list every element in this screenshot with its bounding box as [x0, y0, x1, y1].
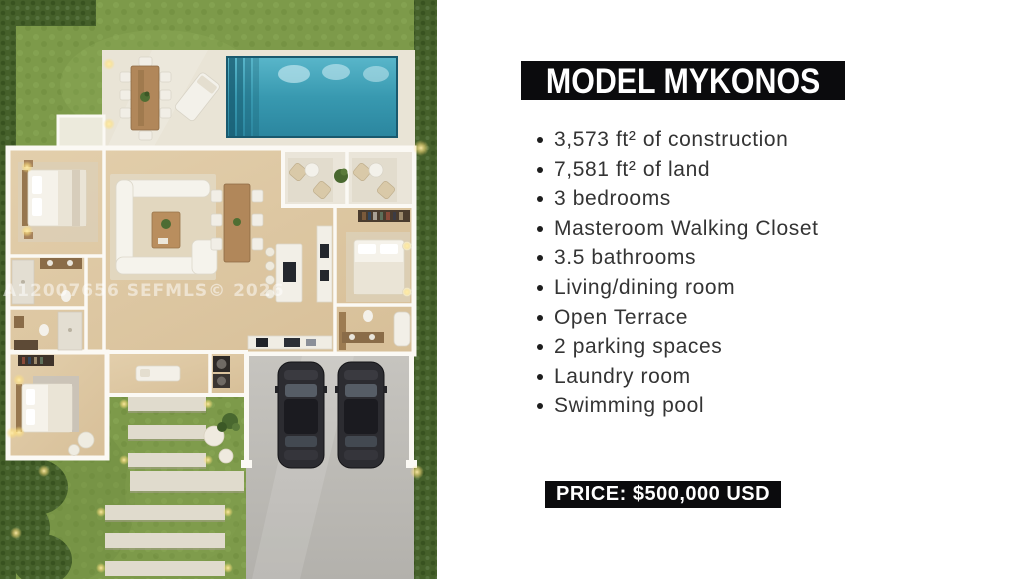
car-2 [335, 362, 387, 468]
swimming-pool [227, 57, 397, 137]
mls-watermark: A12007656 SEFMLS© 2026 [3, 281, 284, 301]
flyer: A12007656 SEFMLS© 2026 MODEL MYKONOS 3,5… [0, 0, 1024, 579]
floorplan-svg: A12007656 SEFMLS© 2026 [0, 0, 437, 579]
info-panel: MODEL MYKONOS 3,573 ft² of construction … [437, 0, 1024, 579]
price-banner: PRICE: $500,000 USD [545, 481, 781, 508]
car-1 [275, 362, 327, 468]
feature-walking-closet: Masteroom Walking Closet [536, 214, 819, 244]
laundry-units [213, 356, 230, 388]
feature-swimming-pool: Swimming pool [536, 391, 819, 421]
title-banner: MODEL MYKONOS [521, 61, 845, 100]
feature-living-dining: Living/dining room [536, 273, 819, 303]
model-title: MODEL MYKONOS [546, 60, 820, 101]
floorplan-render: A12007656 SEFMLS© 2026 [0, 0, 437, 579]
feature-list: 3,573 ft² of construction 7,581 ft² of l… [536, 125, 819, 421]
utility-block [58, 116, 104, 149]
feature-open-terrace: Open Terrace [536, 303, 819, 333]
feature-laundry: Laundry room [536, 362, 819, 392]
price-label: PRICE: $500,000 USD [556, 483, 770, 506]
feature-land-area: 7,581 ft² of land [536, 155, 819, 185]
living-room-sofa [110, 174, 217, 280]
feature-bedrooms: 3 bedrooms [536, 184, 819, 214]
feature-construction-area: 3,573 ft² of construction [536, 125, 819, 155]
feature-bathrooms: 3.5 bathrooms [536, 243, 819, 273]
garage-driveway [241, 356, 417, 579]
dining-table [211, 184, 263, 262]
feature-parking: 2 parking spaces [536, 332, 819, 362]
